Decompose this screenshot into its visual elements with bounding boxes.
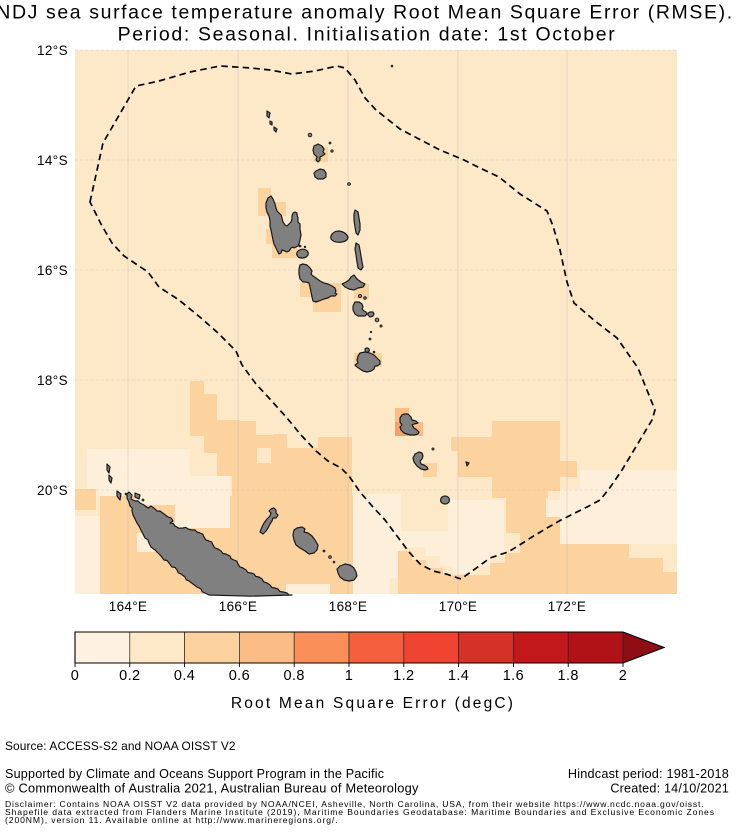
svg-text:168°E: 168°E (329, 599, 367, 614)
svg-text:0.4: 0.4 (174, 668, 195, 684)
svg-text:Root Mean Square Error (degC): Root Mean Square Error (degC) (231, 695, 515, 712)
svg-text:Created: 14/10/2021: Created: 14/10/2021 (610, 782, 729, 796)
svg-text:Supported by Climate and Ocean: Supported by Climate and Oceans Support … (5, 767, 384, 781)
svg-text:0.2: 0.2 (119, 668, 140, 684)
svg-text:Hindcast period: 1981-2018: Hindcast period: 1981-2018 (568, 767, 729, 781)
svg-text:0: 0 (71, 668, 79, 684)
svg-text:172°E: 172°E (548, 599, 586, 614)
svg-text:18°S: 18°S (37, 373, 68, 388)
svg-text:164°E: 164°E (109, 599, 147, 614)
svg-text:2: 2 (619, 668, 627, 684)
svg-text:Period: Seasonal. Initialisati: Period: Seasonal. Initialisation date: 1… (118, 24, 617, 46)
svg-text:NDJ sea surface temperature an: NDJ sea surface temperature anomaly Root… (0, 2, 734, 24)
svg-text:1: 1 (345, 668, 353, 684)
svg-text:(200NM), version 11. Available: (200NM), version 11. Available online at… (5, 815, 338, 825)
svg-text:20°S: 20°S (37, 483, 68, 498)
svg-text:0.8: 0.8 (284, 668, 305, 684)
svg-text:1.4: 1.4 (448, 668, 469, 684)
svg-text:0.6: 0.6 (229, 668, 250, 684)
svg-text:1.6: 1.6 (503, 668, 524, 684)
svg-text:16°S: 16°S (37, 263, 68, 278)
svg-text:12°S: 12°S (37, 43, 68, 58)
svg-text:1.2: 1.2 (393, 668, 414, 684)
svg-text:14°S: 14°S (37, 153, 68, 168)
svg-text:166°E: 166°E (219, 599, 257, 614)
svg-text:Source: ACCESS-S2 and NOAA OIS: Source: ACCESS-S2 and NOAA OISST V2 (5, 739, 236, 753)
svg-text:1.8: 1.8 (558, 668, 579, 684)
svg-text:© Commonwealth of Australia 20: © Commonwealth of Australia 2021, Austra… (5, 781, 419, 796)
svg-text:170°E: 170°E (439, 599, 477, 614)
